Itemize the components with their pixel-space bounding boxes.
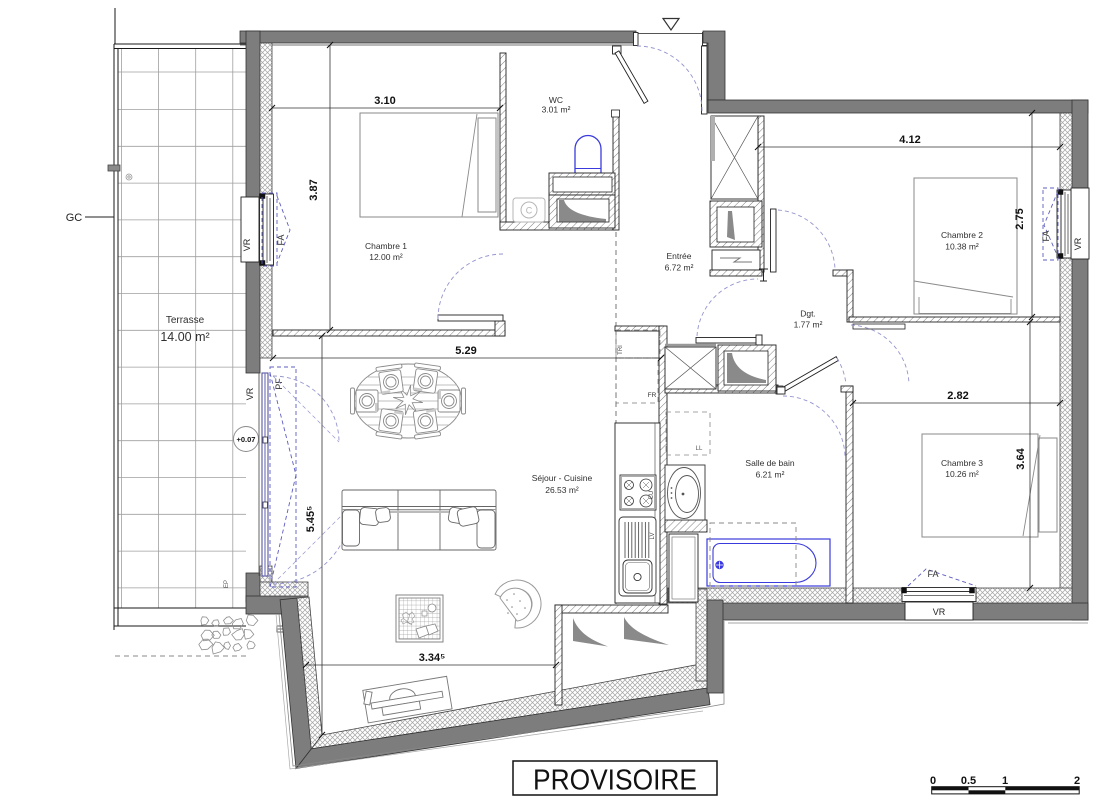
svg-text:FA: FA <box>927 569 938 579</box>
svg-text:LL: LL <box>696 446 703 452</box>
svg-text:3.34⁵: 3.34⁵ <box>419 652 446 664</box>
svg-text:FA: FA <box>1041 230 1051 241</box>
svg-text:2.75: 2.75 <box>1014 208 1026 229</box>
svg-text:Entrée: Entrée <box>666 251 691 261</box>
svg-text:1: 1 <box>1002 775 1008 787</box>
svg-text:VR: VR <box>1073 237 1083 250</box>
svg-text:Dgt.: Dgt. <box>800 309 816 319</box>
svg-text:+0.07: +0.07 <box>237 435 256 444</box>
svg-text:TRI: TRI <box>618 345 624 355</box>
svg-text:0.5: 0.5 <box>961 775 976 787</box>
svg-text:4.12: 4.12 <box>899 134 920 146</box>
svg-text:Chambre 2: Chambre 2 <box>941 230 983 240</box>
svg-text:6.72 m²: 6.72 m² <box>665 263 694 273</box>
svg-text:26.53 m²: 26.53 m² <box>545 485 579 495</box>
svg-text:Chambre 3: Chambre 3 <box>941 458 983 468</box>
svg-text:3.10: 3.10 <box>374 95 395 107</box>
svg-text:3.87: 3.87 <box>308 179 320 200</box>
svg-text:10.26 m²: 10.26 m² <box>945 469 979 479</box>
svg-text:FR: FR <box>648 392 657 399</box>
svg-text:0: 0 <box>930 775 936 787</box>
svg-text:Chambre 1: Chambre 1 <box>365 241 407 251</box>
svg-text:2: 2 <box>1074 775 1080 787</box>
svg-text:LV: LV <box>650 533 656 540</box>
svg-text:Salle de bain: Salle de bain <box>745 458 794 468</box>
svg-text:PROVISOIRE: PROVISOIRE <box>533 765 697 797</box>
svg-text:6.21 m²: 6.21 m² <box>756 470 785 480</box>
svg-text:14.00 m²: 14.00 m² <box>160 330 209 344</box>
svg-text:Séjour - Cuisine: Séjour - Cuisine <box>532 473 593 483</box>
svg-text:12.00 m²: 12.00 m² <box>369 252 403 262</box>
svg-text:CU: CU <box>649 491 655 500</box>
svg-text:WC: WC <box>549 95 563 105</box>
svg-text:C: C <box>526 206 533 216</box>
svg-text:1.77 m²: 1.77 m² <box>794 320 823 330</box>
svg-text:VR: VR <box>933 607 946 617</box>
svg-text:FA: FA <box>276 234 286 245</box>
svg-text:GC: GC <box>66 212 83 224</box>
svg-text:3.64: 3.64 <box>1015 447 1027 469</box>
svg-text:EP: EP <box>224 580 230 588</box>
svg-text:Terrasse: Terrasse <box>166 315 205 326</box>
svg-text:PF: PF <box>274 378 284 390</box>
svg-text:3.01 m²: 3.01 m² <box>542 105 571 115</box>
svg-text:2.82: 2.82 <box>947 390 968 402</box>
svg-text:10.38 m²: 10.38 m² <box>945 242 979 252</box>
svg-text:VR: VR <box>242 238 252 251</box>
svg-text:5.45⁵: 5.45⁵ <box>305 506 317 533</box>
svg-text:5.29: 5.29 <box>455 345 476 357</box>
svg-text:VR: VR <box>245 387 255 400</box>
